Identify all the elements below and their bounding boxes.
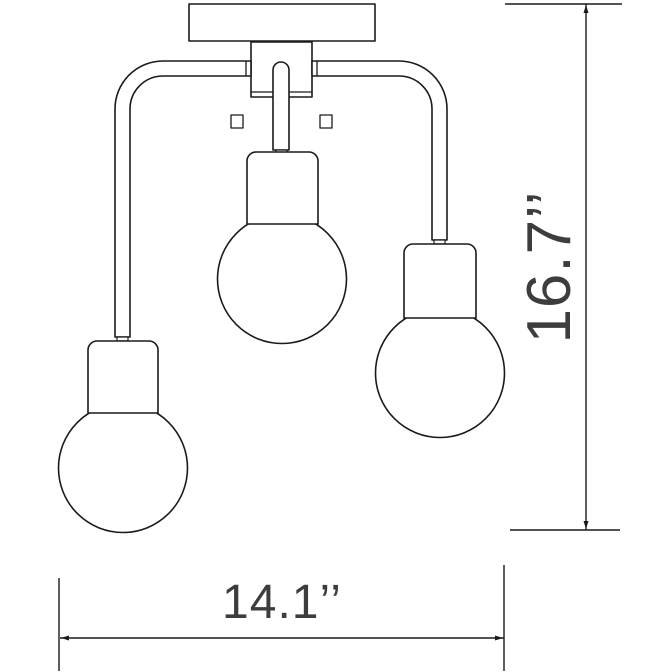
fixture bbox=[59, 4, 505, 533]
width-dimension-label: 14.1’’ bbox=[222, 576, 342, 629]
ceiling-plate bbox=[189, 4, 375, 41]
height-arrow-up bbox=[584, 5, 589, 13]
right-bulb bbox=[376, 309, 505, 438]
left-socket bbox=[88, 341, 158, 413]
center-socket bbox=[247, 152, 318, 224]
mounting-screw-right bbox=[320, 115, 332, 128]
right-socket bbox=[404, 244, 476, 318]
mounting-screw-left bbox=[231, 115, 243, 128]
height-arrow-down bbox=[584, 521, 589, 529]
height-dimension-label: 16.7’’ bbox=[515, 190, 584, 343]
right-arm bbox=[312, 61, 447, 240]
fixture-dimension-drawing: 16.7’’ 14.1’’ bbox=[0, 0, 672, 672]
center-stem bbox=[273, 62, 289, 150]
width-arrow-right bbox=[495, 636, 503, 641]
width-arrow-left bbox=[61, 636, 69, 641]
drawing-canvas: 16.7’’ 14.1’’ bbox=[0, 0, 672, 672]
center-bulb bbox=[218, 215, 347, 344]
left-bulb bbox=[59, 404, 188, 533]
